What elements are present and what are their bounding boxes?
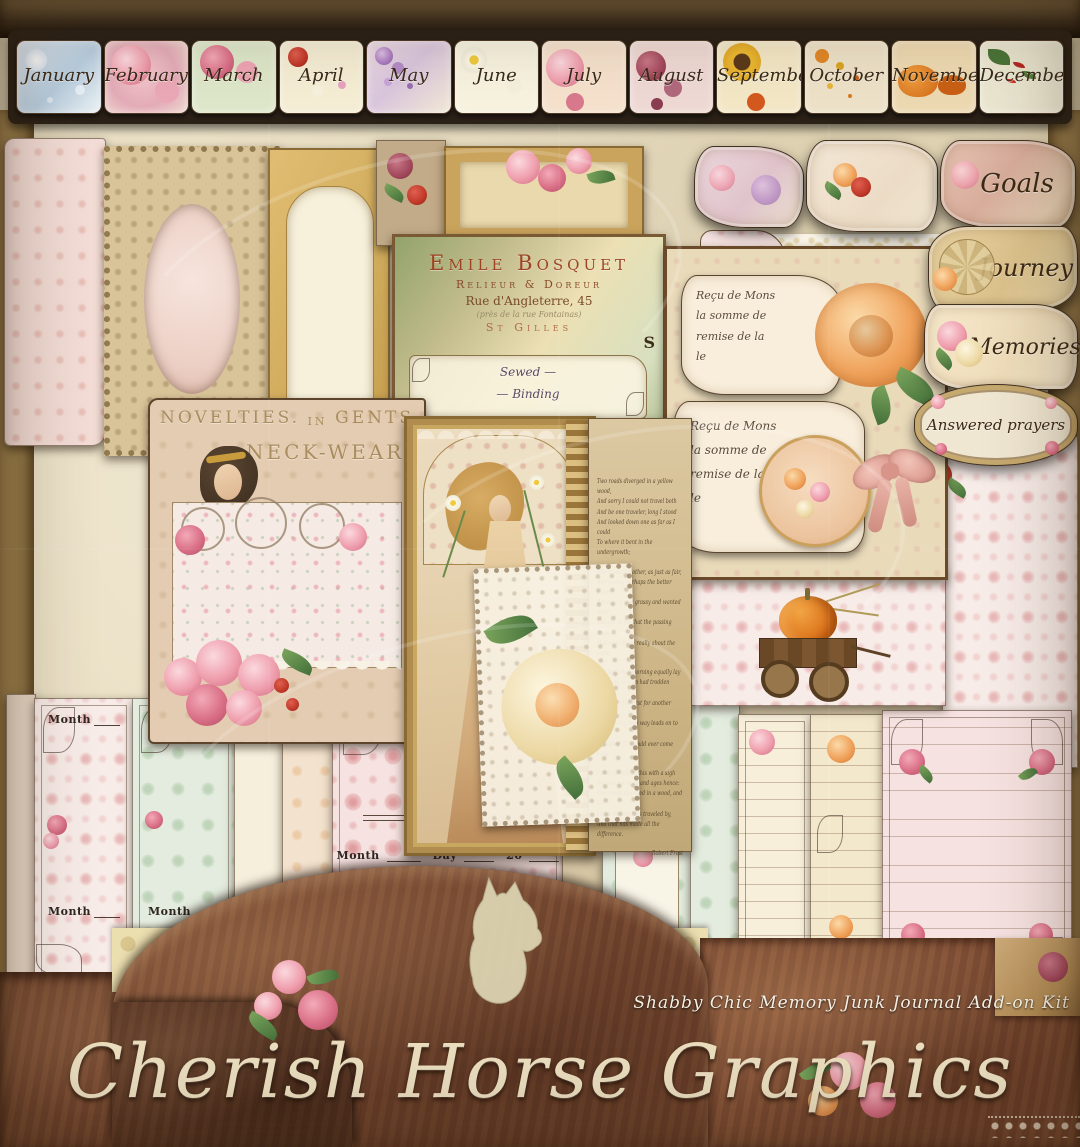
bosquet-address: Rue d'Angleterre, 45 [395, 294, 663, 308]
rose-flower [43, 833, 59, 849]
leaf [916, 764, 936, 783]
wagon-handle [851, 645, 891, 658]
bosquet-trade-card: Emile Bosquet Relieur & Doreur Rue d'Ang… [392, 234, 666, 430]
pumpkin-wagon [745, 588, 895, 700]
holly-motif [988, 49, 1010, 65]
tiny-rose [1045, 397, 1057, 409]
month-tag-january: January [16, 40, 102, 114]
bosquet-script: Sewed — — Binding [410, 362, 646, 405]
lilac-motif [375, 47, 393, 65]
dark-rose [1038, 952, 1068, 982]
month-tag-june: June [454, 40, 540, 114]
gilt-cresting [417, 429, 583, 439]
novelties-word-2: Neck-wear [246, 440, 404, 464]
month-tag-march: March [191, 40, 277, 114]
write-in-line [94, 908, 120, 918]
lily-flower [541, 533, 555, 547]
blank-ornate-label-2 [806, 140, 938, 232]
month-label: Month [48, 905, 91, 918]
rose-flower [145, 811, 163, 829]
lace-doily-with-rose [474, 563, 641, 826]
month-label: Month [337, 849, 380, 862]
headboard-scroll [235, 497, 287, 549]
month-tag-label: October [805, 65, 889, 86]
bud [274, 678, 289, 693]
rose-flower [272, 960, 306, 994]
kit-tagline: Shabby Chic Memory Junk Journal Add-on K… [630, 993, 1070, 1013]
cream-strip-tag [6, 694, 36, 992]
bosquet-title: Emile Bosquet [395, 251, 663, 275]
month-tag-may: May [366, 40, 452, 114]
red-flower [407, 185, 427, 205]
lady-face [214, 464, 242, 500]
blossom [226, 690, 262, 726]
tiny-rose [931, 395, 945, 409]
leaf [278, 648, 316, 676]
month-tag-label: May [367, 65, 451, 86]
month-tag-label: January [17, 65, 101, 86]
pink-bow-tail [894, 476, 918, 528]
tiny-rose [810, 482, 830, 502]
memories-label-text: Memories [969, 335, 1080, 360]
leaf [865, 385, 896, 426]
lady-face [489, 495, 511, 523]
rose-flower [749, 729, 775, 755]
daffodil-motif [288, 47, 308, 67]
rose-flower [851, 177, 871, 197]
bud [286, 698, 299, 711]
poem-signature: Robert Frost [597, 849, 683, 859]
lily-flower [445, 495, 461, 511]
blossom [196, 640, 242, 686]
month-tag-november: November [891, 40, 977, 114]
flourish-corner [412, 358, 430, 382]
frame-window-cutout [286, 186, 374, 414]
month-tag-label: July [542, 65, 626, 86]
novelties-word: Novelties. [160, 408, 300, 428]
month-tag-label: November [892, 65, 976, 86]
rose-flower [951, 161, 979, 189]
pink-bow-knot [881, 463, 899, 479]
wagon-wheel [809, 662, 849, 702]
month-tag-february: February [104, 40, 190, 114]
month-tag-label: September [717, 65, 801, 86]
flourish-corner [817, 815, 843, 853]
wagon-wheel [761, 660, 799, 698]
rose-flower [175, 525, 205, 555]
bosquet-trade: Relieur & Doreur [395, 278, 663, 291]
rose-flower [298, 990, 338, 1030]
goals-label-text: Goals [980, 169, 1054, 199]
horse-head-silhouette [452, 874, 564, 1010]
junk-journal-kit-collage: January February March April May June Ju… [0, 0, 1080, 1147]
months-strip: January February March April May June Ju… [16, 40, 1064, 114]
answered-prayers-text: Answered prayers [927, 416, 1065, 434]
month-tag-july: July [541, 40, 627, 114]
french-receipt-card: Reçu de Mons la somme de remise de la le… [664, 246, 948, 580]
bosquet-label-plate: Sewed — — Binding [409, 355, 647, 419]
rose-heart [849, 315, 893, 357]
month-label: Month [148, 905, 191, 918]
month-tag-label: June [455, 65, 539, 86]
doily-oval-cutout [144, 204, 240, 394]
month-tag-label: March [192, 65, 276, 86]
burgundy-floral-paper [376, 140, 446, 246]
bosquet-initial: S [643, 333, 655, 352]
floral-medallion [759, 435, 871, 547]
novelties-word: in [308, 415, 328, 428]
cherry-blossom-cluster [154, 636, 374, 740]
month-tag-label: April [280, 65, 364, 86]
bosquet-note: (près de la rue Fontainas) [395, 310, 663, 319]
answered-prayers-label: Answered prayers [914, 384, 1078, 466]
tiny-rose [935, 443, 947, 455]
month-tag-december: December [979, 40, 1065, 114]
pumpkin [779, 596, 837, 644]
rose-flower [933, 267, 957, 291]
rose-flower [829, 915, 853, 939]
journey-label: Journey [928, 226, 1078, 310]
rose-flower [506, 150, 540, 184]
rose-flower [827, 735, 855, 763]
bosquet-city: St Gilles [395, 321, 663, 334]
headboard-scroll [299, 503, 345, 549]
tiny-rose [796, 500, 814, 518]
month-tag-august: August [629, 40, 715, 114]
autumn-leaves-motif [815, 49, 829, 63]
rose-flower [566, 148, 592, 174]
pumpkin-stem [805, 588, 810, 600]
write-in-line [94, 716, 120, 726]
rose-flower [339, 523, 367, 551]
pink-floral-paper [4, 138, 106, 446]
burgundy-flower [387, 153, 413, 179]
blossom [186, 684, 228, 726]
rose-flower [955, 339, 983, 367]
novelties-word: Gents [335, 408, 414, 428]
rose-flower [709, 165, 735, 191]
leaf [483, 606, 537, 653]
rose-flower [538, 164, 566, 192]
lily-flower [529, 475, 544, 490]
month-tag-label: February [105, 65, 189, 86]
rose-flower [751, 175, 781, 205]
month-tag-label: December [980, 65, 1064, 86]
rose-flower [47, 815, 67, 835]
tiny-rose [1045, 441, 1059, 455]
leaf [306, 965, 339, 990]
blank-ornate-label-1 [694, 146, 804, 228]
poem-stanza-1: Two roads diverged in a yellow wood, And… [597, 477, 683, 559]
goals-label: Goals [940, 140, 1076, 228]
month-header: Month [35, 713, 133, 726]
leaf [382, 183, 407, 203]
memories-label: Memories [924, 304, 1078, 390]
month-tag-september: September [716, 40, 802, 114]
month-tag-april: April [279, 40, 365, 114]
flourish-corner [626, 392, 644, 416]
month-tag-october: October [804, 40, 890, 114]
month-header-2: Month [35, 905, 133, 918]
month-tag-label: August [630, 65, 714, 86]
novelties-neckwear-card: Novelties. in Gents Neck-wear [148, 398, 426, 744]
novelties-header-row: Novelties. in Gents [160, 408, 414, 428]
horse-head-graphic [452, 874, 564, 1010]
lace-trim [988, 1116, 1080, 1138]
brand-title: Cherish Horse Graphics [40, 1028, 1040, 1117]
rose-garland-frame [444, 146, 644, 244]
tiny-rose [784, 468, 806, 490]
month-label: Month [48, 713, 91, 726]
